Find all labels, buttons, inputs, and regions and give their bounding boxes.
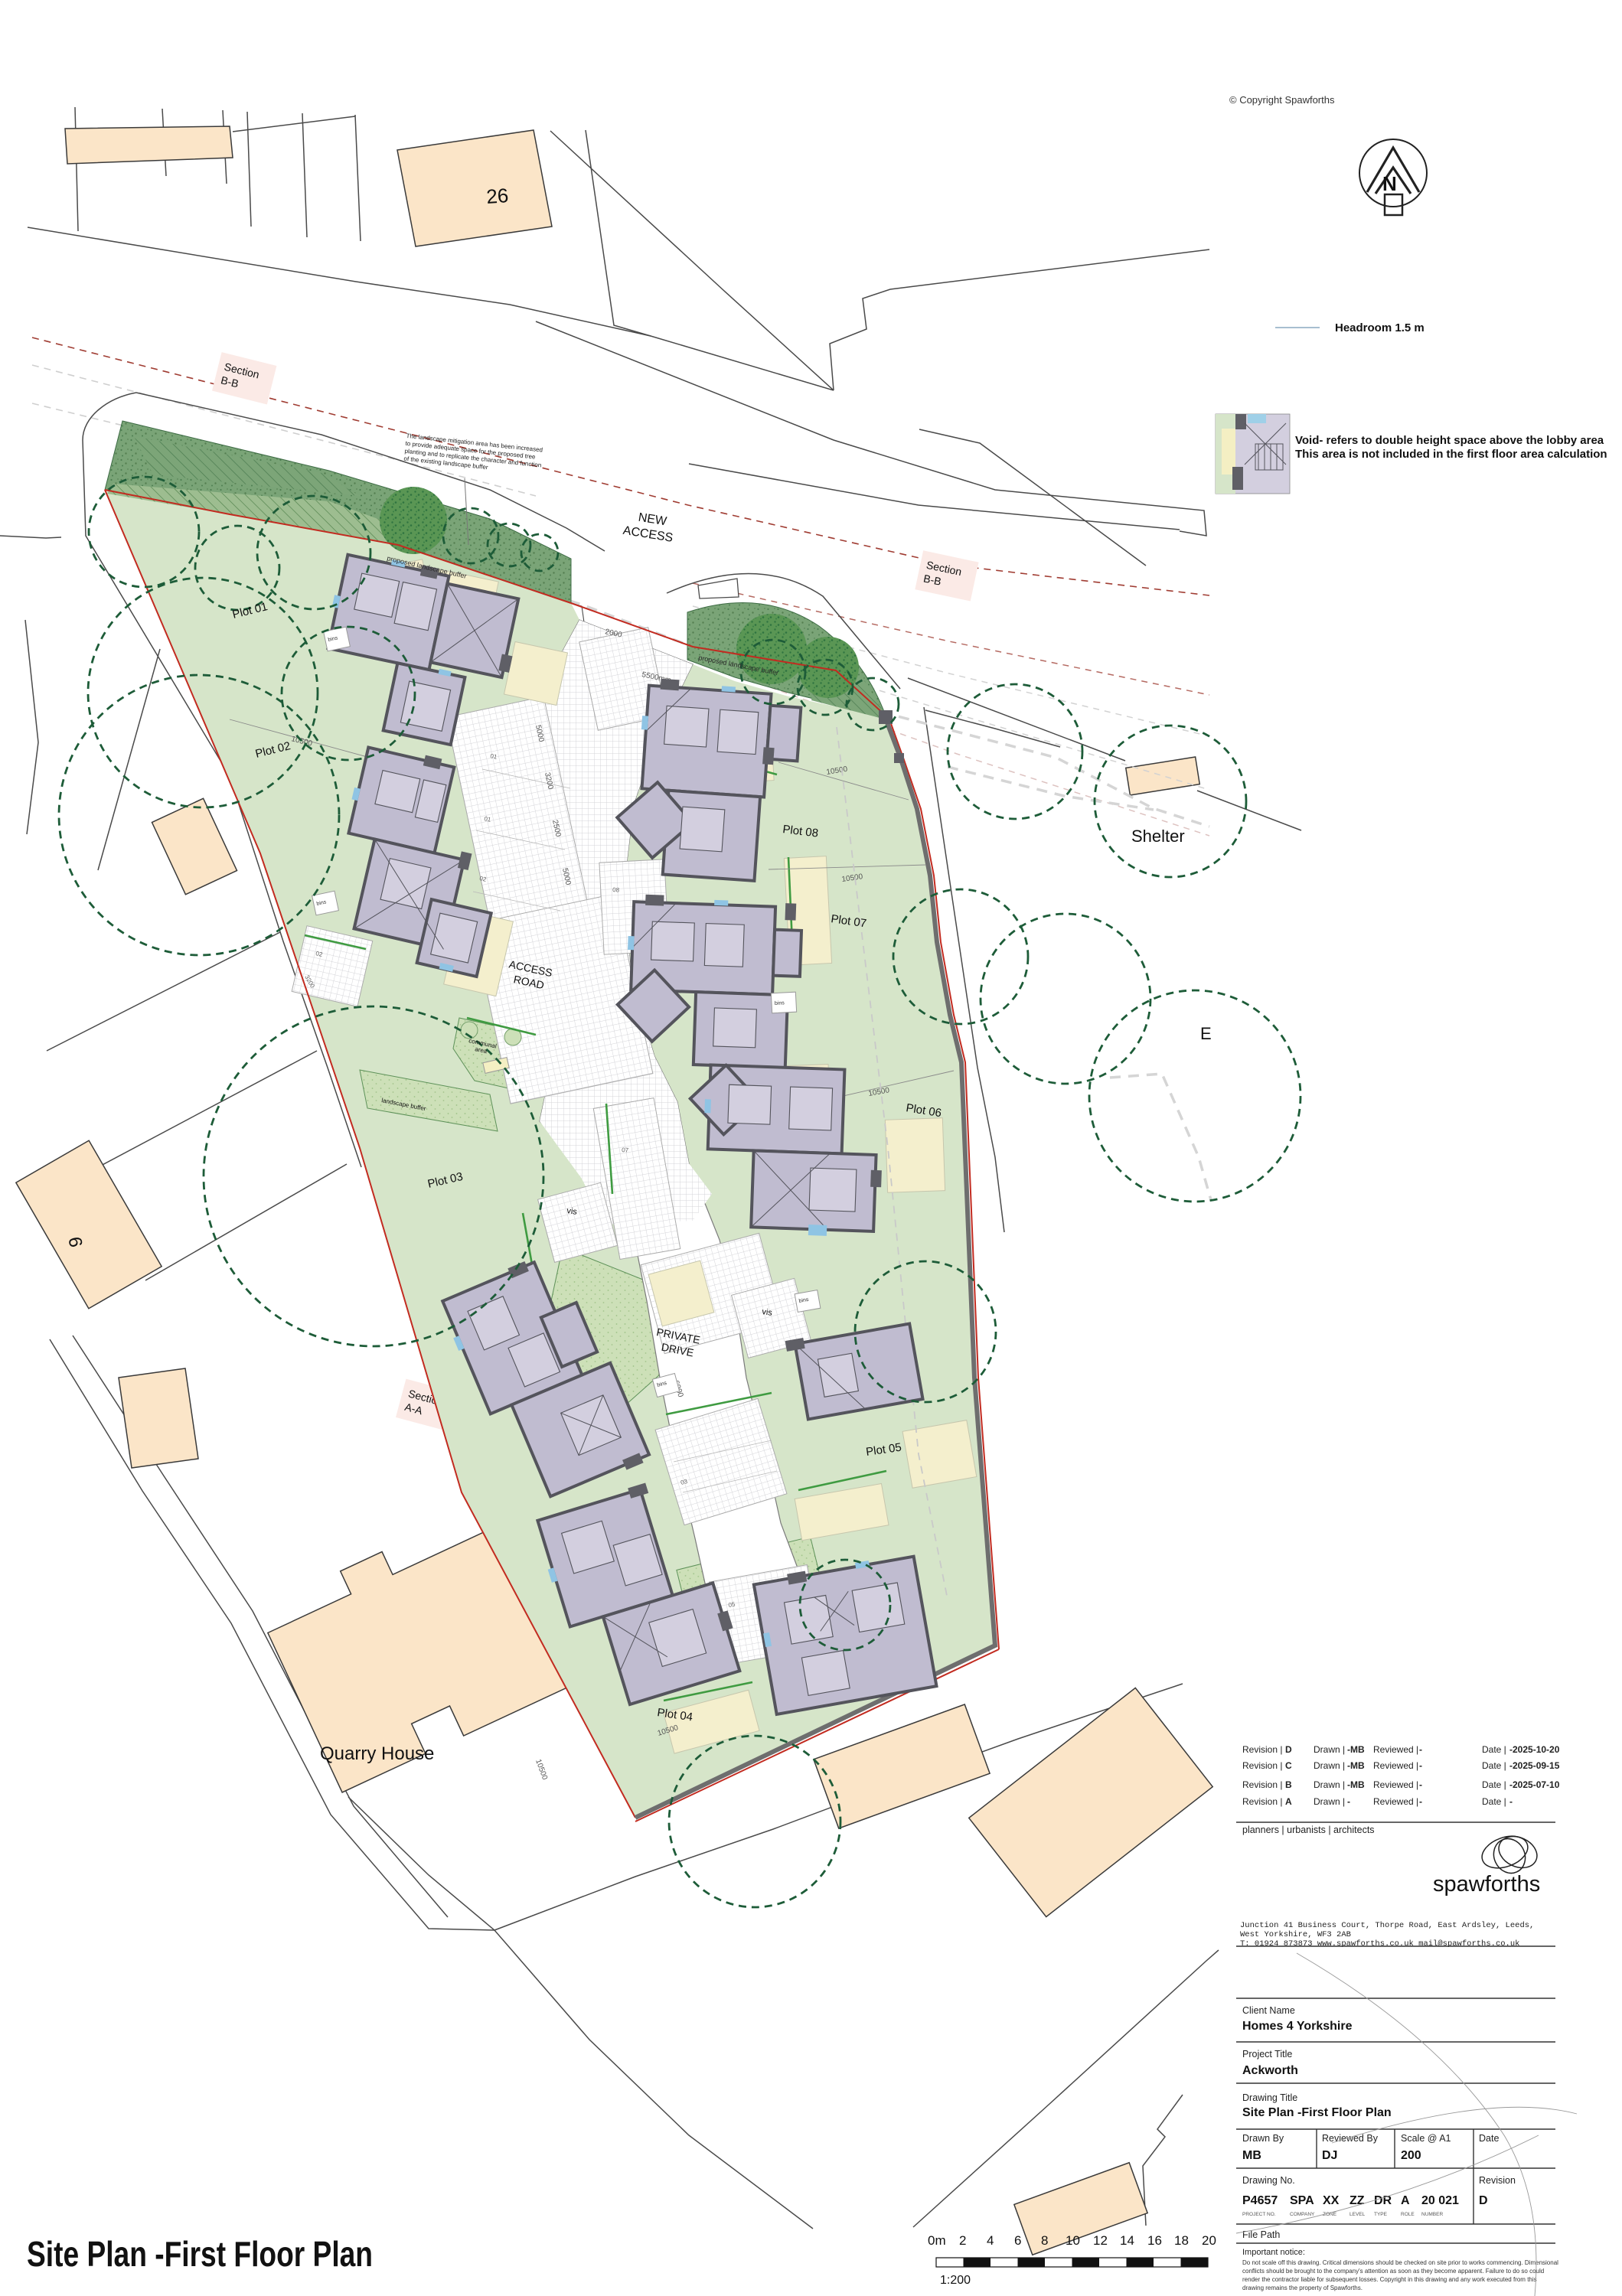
- svg-text:-: -: [1419, 1744, 1422, 1755]
- svg-text:-MB: -MB: [1347, 1779, 1365, 1790]
- svg-text:XX: XX: [1323, 2194, 1340, 2207]
- svg-text:-MB: -MB: [1347, 1744, 1365, 1755]
- svg-text:T: 01924 873873 www.spawforth: T: 01924 873873 www.spawforths.co.uk mai…: [1240, 1939, 1519, 1949]
- svg-text:drawing remains the property o: drawing remains the property of Spawfort…: [1242, 2285, 1363, 2291]
- svg-text:Reviewed |: Reviewed |: [1373, 1744, 1418, 1755]
- svg-text:spawforths: spawforths: [1433, 1872, 1540, 1896]
- svg-text:Headroom 1.5 m: Headroom 1.5 m: [1335, 321, 1425, 334]
- svg-text:16: 16: [1147, 2233, 1162, 2248]
- svg-text:08: 08: [612, 886, 620, 894]
- svg-text:-2025-09-15: -2025-09-15: [1509, 1760, 1560, 1771]
- svg-text:PROJECT NO.: PROJECT NO.: [1242, 2212, 1276, 2217]
- svg-text:-: -: [1509, 1796, 1513, 1807]
- svg-text:P4657: P4657: [1242, 2194, 1278, 2207]
- svg-text:TYPE: TYPE: [1374, 2212, 1388, 2217]
- svg-text:This area is not included in t: This area is not included in the first f…: [1295, 448, 1607, 461]
- svg-text:-: -: [1419, 1796, 1422, 1807]
- svg-text:C: C: [1285, 1760, 1292, 1771]
- svg-text:Junction 41 Business Court, Th: Junction 41 Business Court, Thorpe Road,…: [1240, 1921, 1534, 1930]
- svg-text:vis: vis: [762, 1307, 773, 1318]
- svg-text:20: 20: [1202, 2233, 1216, 2248]
- svg-text:0m: 0m: [928, 2233, 946, 2248]
- svg-text:1:200: 1:200: [940, 2274, 971, 2287]
- svg-text:Site Plan -First Floor Plan: Site Plan -First Floor Plan: [1242, 2106, 1392, 2119]
- svg-text:-2025-07-10: -2025-07-10: [1509, 1779, 1560, 1790]
- svg-text:Quarry House: Quarry House: [320, 1743, 434, 1764]
- svg-text:COMPANY: COMPANY: [1290, 2212, 1315, 2217]
- svg-text:Drawn |: Drawn |: [1314, 1779, 1345, 1790]
- svg-text:render the contractor liable f: render the contractor liable for subsequ…: [1242, 2276, 1537, 2283]
- svg-text:bins: bins: [775, 1000, 785, 1006]
- svg-text:DJ: DJ: [1322, 2149, 1337, 2162]
- svg-text:Reviewed |: Reviewed |: [1373, 1779, 1418, 1790]
- svg-text:-2025-10-20: -2025-10-20: [1509, 1744, 1560, 1755]
- svg-text:Revision: Revision: [1479, 2175, 1516, 2186]
- svg-text:SPA: SPA: [1290, 2194, 1314, 2207]
- svg-text:Date |: Date |: [1482, 1779, 1506, 1790]
- svg-text:-: -: [1419, 1760, 1422, 1771]
- svg-text:Date |: Date |: [1482, 1796, 1506, 1807]
- svg-text:Important notice:: Important notice:: [1242, 2248, 1305, 2257]
- svg-text:Do not scale off this drawing.: Do not scale off this drawing. Critical …: [1242, 2259, 1558, 2266]
- svg-text:Revision |: Revision |: [1242, 1760, 1282, 1771]
- svg-text:NUMBER: NUMBER: [1421, 2212, 1443, 2217]
- svg-text:Void- refers to double height: Void- refers to double height space abov…: [1295, 434, 1604, 447]
- svg-text:E: E: [1200, 1024, 1212, 1043]
- svg-text:07: 07: [622, 1146, 629, 1154]
- svg-text:Project Title: Project Title: [1242, 2049, 1292, 2060]
- svg-text:Revision |: Revision |: [1242, 1796, 1282, 1807]
- svg-text:vis: vis: [566, 1206, 578, 1217]
- svg-text:Reviewed |: Reviewed |: [1373, 1796, 1418, 1807]
- svg-text:Drawn |: Drawn |: [1314, 1744, 1345, 1755]
- svg-text:Drawing No.: Drawing No.: [1242, 2175, 1295, 2186]
- svg-text:Homes 4 Yorkshire: Homes 4 Yorkshire: [1242, 2020, 1353, 2033]
- svg-text:Drawn |: Drawn |: [1314, 1796, 1345, 1807]
- svg-text:Revision |: Revision |: [1242, 1779, 1282, 1790]
- svg-text:DR: DR: [1374, 2194, 1392, 2207]
- svg-text:4: 4: [987, 2233, 994, 2248]
- svg-text:D: D: [1479, 2194, 1488, 2207]
- svg-text:-MB: -MB: [1347, 1760, 1365, 1771]
- svg-text:Reviewed |: Reviewed |: [1373, 1760, 1418, 1771]
- svg-text:N: N: [1382, 172, 1397, 195]
- svg-text:Date: Date: [1479, 2133, 1499, 2144]
- svg-text:planners | urbanists | arc: planners | urbanists | architects: [1242, 1825, 1375, 1835]
- svg-text:2: 2: [959, 2233, 966, 2248]
- svg-text:Scale @ A1: Scale @ A1: [1401, 2133, 1451, 2144]
- svg-text:© Copyright Spawforths: © Copyright Spawforths: [1229, 94, 1335, 106]
- svg-text:200: 200: [1401, 2149, 1421, 2162]
- svg-text:Drawing Title: Drawing Title: [1242, 2092, 1297, 2103]
- svg-text:West Yorkshire, WF3 2AB: West Yorkshire, WF3 2AB: [1240, 1930, 1351, 1939]
- svg-text:10: 10: [1066, 2233, 1080, 2248]
- svg-text:20 021: 20 021: [1421, 2194, 1459, 2207]
- svg-text:6: 6: [1014, 2233, 1021, 2248]
- svg-text:12: 12: [1093, 2233, 1108, 2248]
- svg-text:Drawn By: Drawn By: [1242, 2133, 1284, 2144]
- svg-text:18: 18: [1174, 2233, 1189, 2248]
- svg-text:-: -: [1347, 1796, 1350, 1807]
- svg-text:Revision |: Revision |: [1242, 1744, 1282, 1755]
- svg-text:B: B: [1285, 1779, 1292, 1790]
- svg-text:Shelter: Shelter: [1131, 827, 1185, 846]
- svg-text:MB: MB: [1242, 2149, 1261, 2162]
- svg-text:D: D: [1285, 1744, 1292, 1755]
- svg-text:A: A: [1401, 2194, 1410, 2207]
- svg-text:conflicts should be brought to: conflicts should be brought to the compa…: [1242, 2268, 1544, 2275]
- svg-text:14: 14: [1120, 2233, 1134, 2248]
- svg-text:LEVEL: LEVEL: [1349, 2212, 1366, 2217]
- svg-text:A: A: [1285, 1796, 1292, 1807]
- svg-text:-: -: [1419, 1779, 1422, 1790]
- svg-text:26: 26: [485, 184, 509, 208]
- svg-text:Client Name: Client Name: [1242, 2005, 1295, 2016]
- svg-text:Site Plan -First Floor Plan: Site Plan -First Floor Plan: [27, 2234, 373, 2274]
- svg-text:Reviewed By: Reviewed By: [1322, 2133, 1379, 2144]
- svg-text:ROLE: ROLE: [1401, 2212, 1415, 2217]
- svg-text:Date |: Date |: [1482, 1744, 1506, 1755]
- svg-text:Date |: Date |: [1482, 1760, 1506, 1771]
- svg-text:8: 8: [1041, 2233, 1048, 2248]
- svg-text:Ackworth: Ackworth: [1242, 2064, 1298, 2077]
- svg-text:Drawn |: Drawn |: [1314, 1760, 1345, 1771]
